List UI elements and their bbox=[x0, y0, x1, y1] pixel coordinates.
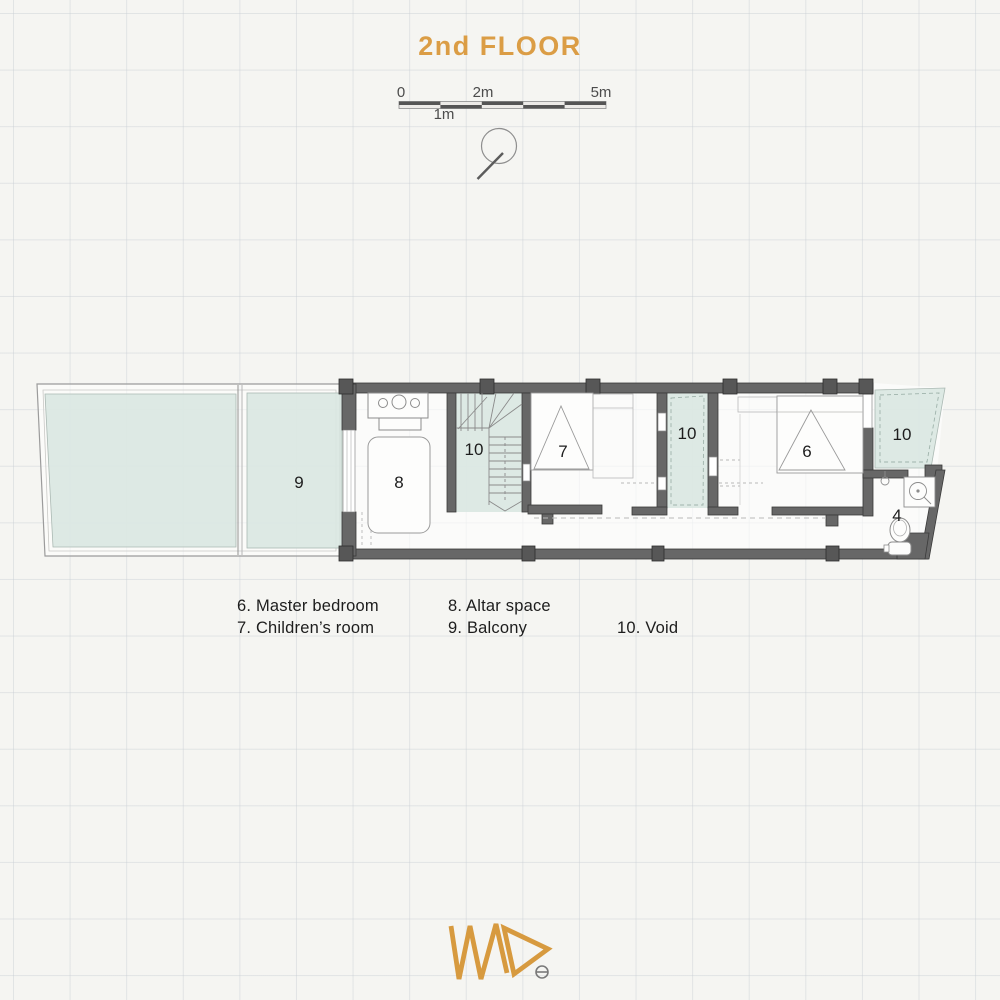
north-indicator-icon bbox=[478, 129, 517, 180]
scale-label-2m: 2m bbox=[473, 84, 494, 101]
legend-item-altar-space: 8. Altar space bbox=[448, 597, 551, 616]
room-label-altar: 8 bbox=[394, 473, 403, 492]
legend-item-childrens-room: 7. Children’s room bbox=[237, 619, 374, 638]
room-label-right-void: 10 bbox=[893, 425, 912, 444]
room-label-bathroom: 4 bbox=[892, 506, 901, 525]
sink-icon bbox=[904, 477, 935, 507]
altar-furniture bbox=[368, 393, 430, 533]
mid-void-area bbox=[667, 393, 708, 508]
floor-plan-page: 2nd FLOOR 0 2m 5m 1m bbox=[0, 0, 1000, 1000]
room-label-children: 7 bbox=[558, 442, 567, 461]
terrace-void-area bbox=[45, 394, 236, 547]
scale-label-5m: 5m bbox=[591, 84, 612, 101]
terrace-and-balcony bbox=[37, 384, 342, 556]
mad-logo bbox=[451, 924, 548, 979]
room-label-stair-void: 10 bbox=[465, 440, 484, 459]
legend-item-balcony: 9. Balcony bbox=[448, 619, 527, 638]
scale-label-0: 0 bbox=[397, 84, 405, 101]
scale-label-1m: 1m bbox=[434, 106, 455, 123]
balcony-area bbox=[247, 393, 342, 548]
scale-bar: 0 2m 5m 1m bbox=[397, 84, 612, 123]
room-label-master: 6 bbox=[802, 442, 811, 461]
room-label-mid-void: 10 bbox=[678, 424, 697, 443]
legend-item-master-bedroom: 6. Master bedroom bbox=[237, 597, 379, 616]
floor-plan-drawing: 0 2m 5m 1m bbox=[0, 0, 1000, 1000]
room-label-balcony: 9 bbox=[294, 473, 303, 492]
floor-plan: 9 8 10 7 10 6 10 4 bbox=[37, 379, 945, 561]
legend-item-void: 10. Void bbox=[617, 619, 678, 638]
